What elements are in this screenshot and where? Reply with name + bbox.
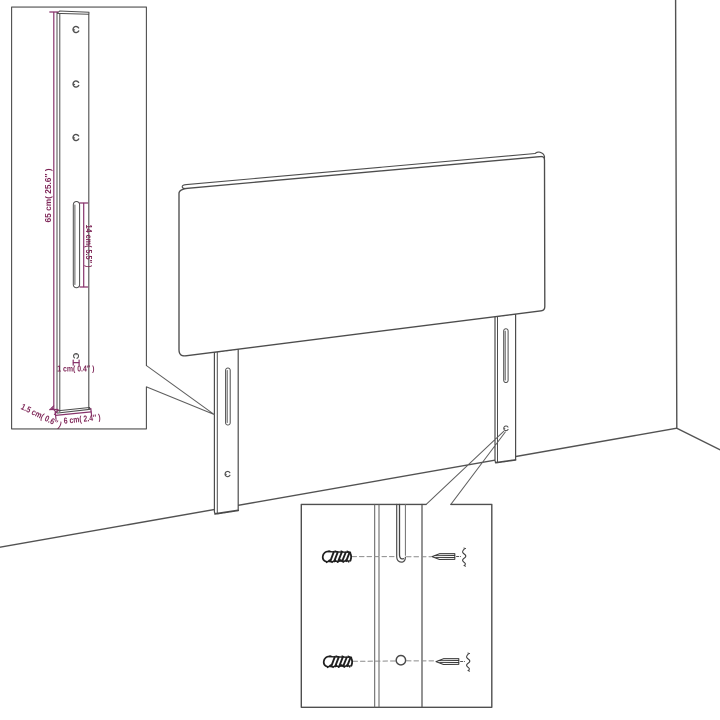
svg-text:65 cm( 25.6″ ): 65 cm( 25.6″ )	[43, 168, 53, 222]
svg-text:14 cm( 5.5″ ): 14 cm( 5.5″ )	[84, 225, 94, 268]
svg-text:1 cm( 0.4″ ): 1 cm( 0.4″ )	[57, 363, 94, 373]
